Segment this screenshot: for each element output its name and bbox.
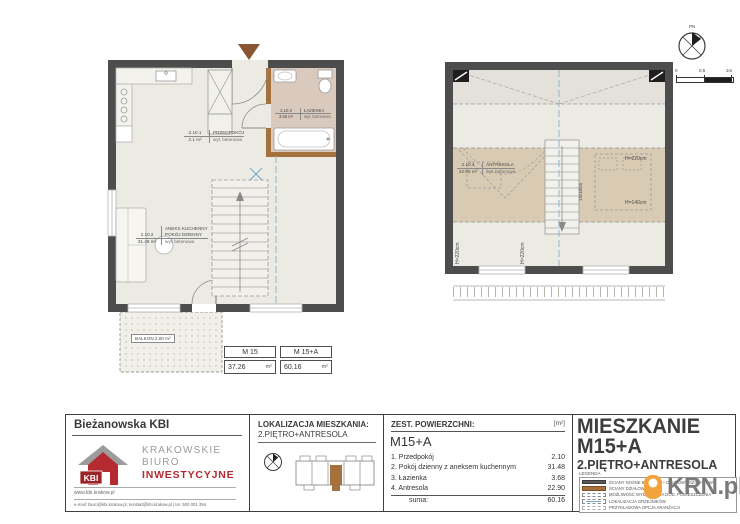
room-label-living: 2.10.2ANEKS KUCHENNY POKÓJ DZIENNY 31.48… — [136, 226, 208, 245]
location-compass-icon — [262, 451, 284, 473]
areas-rows: 1. Przedpokój2.10 2. Pokój dzienny z ane… — [391, 453, 565, 506]
stairs-dimension-note: 19x18/25 — [578, 183, 583, 201]
krn-logo-icon — [642, 473, 664, 501]
legend-swatch-arrangement — [582, 506, 606, 511]
title-block: Bieżanowska KBI KBI KRAKOWSKIE BIURO INW… — [65, 414, 736, 512]
company-name-line3: INWESTYCYJNE — [142, 469, 234, 481]
scale-bar: 0 0,5 1m — [676, 68, 736, 86]
location-value: 2.PIĘTRO+ANTRESOLA — [258, 430, 348, 439]
height-label-right-top: H=220cm — [625, 156, 647, 162]
legend-swatch-partition-walls — [582, 486, 606, 491]
kbi-logo-icon: KBI — [76, 441, 136, 487]
krn-logo-text: KRN.pl — [667, 473, 740, 501]
scale-tick-0: 0 — [675, 68, 678, 73]
height-label-left-a: H=220cm — [455, 242, 461, 264]
company-name-line2: BIURO — [142, 457, 180, 468]
north-arrow: PN — [674, 24, 710, 64]
unit-area-table: M 15 M 15+A 37.26m² 60.16m² — [224, 346, 332, 374]
unit-area-value-m15a: 60.16m² — [280, 360, 332, 374]
room-label-hall: 2.10.1PRZEDPOKÓJ 2.1 m²wył. betonowa — [184, 130, 244, 143]
highlighted-unit — [330, 465, 342, 485]
lower-floor-plan: 2.10.1PRZEDPOKÓJ 2.1 m²wył. betonowa 2.1… — [100, 40, 350, 390]
unit-area-value-m15: 37.26m² — [224, 360, 276, 374]
areas-header: ZEST. POWIERZCHNI: — [391, 420, 475, 429]
plan-sheet: 2.10.1PRZEDPOKÓJ 2.1 m²wył. betonowa 2.1… — [0, 0, 740, 524]
unit-area-header-m15: M 15 — [224, 346, 276, 358]
legend-swatch-radiators — [582, 499, 606, 504]
areas-unit-code: M15+A — [390, 434, 432, 449]
mezzanine-plan-drawing — [437, 50, 687, 320]
height-label-left-b: H=220cm — [520, 242, 526, 264]
apartment-title-line3: 2.PIĘTRO+ANTRESOLA — [577, 457, 717, 472]
compass-icon — [675, 29, 709, 63]
unit-area-header-m15a: M 15+A — [280, 346, 332, 358]
building-footprint-map — [294, 451, 378, 497]
mezzanine-plan: 2.10.4ANTRESOLA 22.90 m²wył. betonowa H=… — [437, 50, 687, 320]
legend-item: PRZYKŁADOWA OPCJA ARANŻACJI — [582, 505, 734, 511]
entrance-marker-icon — [238, 44, 260, 60]
area-row: 1. Przedpokój2.10 — [391, 453, 565, 463]
company-contact: e-mail: biuro@kbi.krakow.pl, kontakt@kbi… — [74, 502, 206, 507]
balcony-label: BALKON 2.00 m² — [131, 334, 175, 343]
scale-tick-mid: 0,5 — [699, 68, 705, 73]
height-label-right-bottom: H=140cm — [625, 200, 647, 206]
room-label-bath: 2.10.3ŁAZIENKA 3.68 m²wył. betonowa — [275, 108, 331, 120]
scale-tick-end: 1m — [726, 68, 732, 73]
kbi-logo-text: KBI — [84, 473, 99, 483]
area-row: 3. Łazienka3.68 — [391, 474, 565, 484]
areas-unit: [m²] — [554, 420, 565, 429]
legend-header: LEGENDA — [579, 471, 601, 476]
room-label-antresola: 2.10.4ANTRESOLA 22.90 m²wył. betonowa — [457, 162, 515, 175]
apartment-title-line2: M15+A — [577, 435, 642, 459]
area-row: 4. Antresola22.90 — [391, 484, 565, 495]
company-name-line1: KRAKOWSKIE — [142, 445, 221, 456]
krn-logo: KRN.pl — [642, 473, 740, 501]
project-title: Bieżanowska KBI — [74, 419, 169, 431]
company-website: www.kbi.krakow.pl — [74, 490, 115, 496]
location-label: LOKALIZACJA MIESZKANIA: — [258, 420, 369, 429]
legend-swatch-optional-room — [582, 493, 606, 498]
area-row: 2. Pokój dzienny z aneksem kuchennym31.4… — [391, 463, 565, 473]
area-sum-row: suma:60.16 — [391, 496, 565, 506]
legend-swatch-structural-walls — [582, 480, 606, 485]
